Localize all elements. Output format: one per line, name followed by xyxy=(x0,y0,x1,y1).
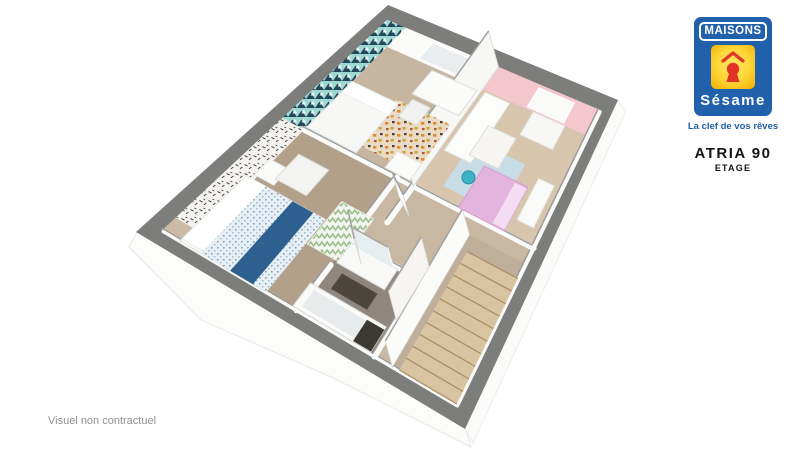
brand-block: MAISONS Sésame La clef de vos rêves ATRI… xyxy=(673,17,793,173)
keyhole-badge xyxy=(711,45,755,89)
brand-name-top: MAISONS xyxy=(699,22,767,41)
maisons-sesame-logo: MAISONS Sésame xyxy=(694,17,772,116)
plan-model-name: ATRIA 90 xyxy=(673,145,793,162)
page: MAISONS Sésame La clef de vos rêves ATRI… xyxy=(0,0,800,450)
brand-tagline: La clef de vos rêves xyxy=(673,121,793,132)
plan-floor-label: ETAGE xyxy=(673,163,793,173)
keyhole-icon xyxy=(718,50,748,84)
disclaimer-text: Visuel non contractuel xyxy=(48,415,156,427)
kids-owl-toy xyxy=(462,171,475,184)
brand-name-bottom: Sésame xyxy=(694,92,772,109)
